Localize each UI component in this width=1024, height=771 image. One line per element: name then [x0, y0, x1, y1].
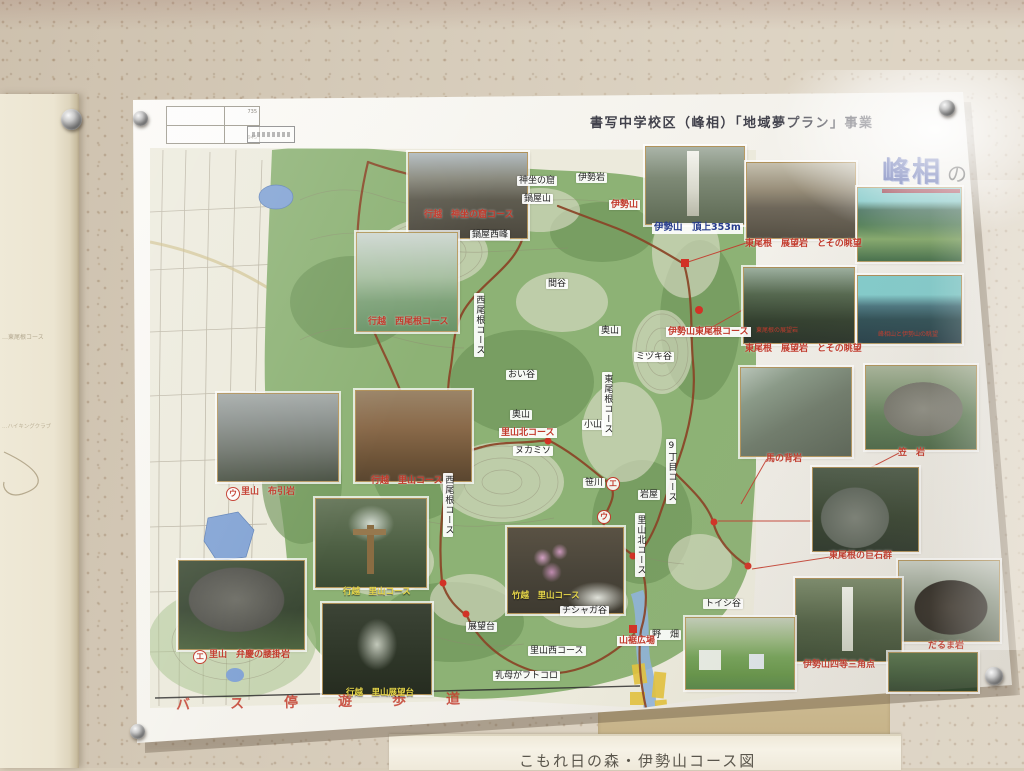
approval-stamp-box: [247, 126, 295, 143]
kyosekigun-photo: [812, 467, 919, 552]
photo-caption-red: 馬の背岩: [766, 454, 802, 464]
map-place-label: 鍋屋山: [522, 194, 553, 204]
series-title-particle: の: [947, 162, 967, 186]
map-place-label: 岩屋: [638, 490, 660, 500]
sankakuten-photo-detail: [842, 587, 853, 651]
yamasuso-park-photo: [685, 617, 795, 690]
map-marker-circled: エ: [606, 477, 620, 491]
photo-caption-red: 里山北コース: [499, 428, 557, 438]
signpost-crossing-photo: [315, 498, 427, 588]
map-course-label: 西尾根コース: [474, 293, 484, 357]
photo-caption-red: 東尾根 展望岩 とその眺望: [745, 239, 862, 249]
map-place-label: 奥山: [599, 326, 621, 336]
poster-screw-top-left: [133, 111, 148, 126]
map-place-label: おい谷: [506, 370, 537, 380]
scale-table-row: [167, 107, 259, 126]
photo-caption-yellow: 行越 里山コース: [343, 588, 411, 598]
uma-no-se-iwa-photo: [740, 367, 852, 457]
photo-caption-tiny: 峰相山と伊勢山の眺望: [878, 332, 938, 339]
photo-caption-red: 伊勢山: [609, 200, 640, 210]
shinza-no-iwaya-photo: [408, 152, 528, 239]
map-place-label: 乳母がフトコロ: [493, 671, 560, 681]
left-sheet-screw: [61, 109, 82, 130]
map-course-label: 9丁目コース: [666, 439, 676, 504]
benkei-iwa-photo: [178, 560, 305, 650]
photo-caption-red: 行越 西尾根コース: [368, 317, 449, 327]
scale-number: 735: [247, 109, 257, 115]
map-marker-circled: ウ: [226, 487, 240, 501]
photo-caption-red: 伊勢山四等三角点: [803, 660, 875, 670]
sankakuten-photo: [795, 578, 902, 662]
poster-screw-bottom-left: [130, 724, 145, 739]
signpost-crossing-photo-detail: [353, 529, 386, 535]
map-place-label: 間谷: [546, 279, 568, 289]
photo-caption-red: 山裾広場: [617, 636, 657, 646]
photo-caption-red: 行越 里山コース: [371, 476, 443, 486]
photo-caption-blue: 伊勢山 頂上353m: [652, 223, 743, 234]
map-course-label: 里山北コース: [635, 513, 645, 577]
series-title: 峰相の: [882, 150, 967, 190]
map-place-label: 展望台: [466, 622, 497, 632]
map-scale-table: 735 945: [166, 106, 260, 144]
photo-caption-tiny: 東尾根の展望岩: [756, 328, 798, 335]
photo-caption-red: 東尾根の巨石群: [829, 551, 892, 561]
photo-caption-red: 里山 布引岩: [241, 487, 295, 497]
photo-caption-yellow: 行越 里山展望台: [346, 689, 414, 699]
map-place-label: トイシ谷: [703, 599, 743, 609]
photo-caption-red: 伊勢山東尾根コース: [666, 327, 751, 337]
photo-caption-red: 行越 神坐の窟コース: [424, 210, 514, 220]
iseyama-summit-photo-detail: [687, 151, 699, 216]
yamasuso-park-photo-detail: [699, 650, 721, 670]
daruma-iwa-photo: [898, 560, 1000, 642]
bus-route-text: バス停遊歩道: [176, 688, 500, 715]
kasa-iwa-photo: [865, 365, 977, 450]
photo-caption-red: 東尾根 展望岩 とその眺望: [745, 344, 862, 354]
poster-screw-top-right: [939, 100, 955, 116]
map-place-label: ヌカミソ: [513, 446, 553, 456]
poster-screw-bottom-right: [985, 667, 1003, 685]
series-title-main: 峰相: [882, 155, 942, 188]
map-course-label: 西尾根コース: [443, 473, 453, 537]
teal-valley-photo: [857, 187, 962, 262]
map-place-label: 伊勢岩: [576, 173, 607, 183]
series-title-underline: [882, 189, 960, 193]
east-ridge-rock-1-photo: [746, 162, 856, 239]
map-place-label: 神坐の窟: [517, 176, 557, 186]
map-place-label: 鍋屋西峰: [470, 230, 510, 240]
yukikoshi-autumn-photo: [355, 390, 472, 482]
map-place-label: ミヅキ谷: [634, 352, 674, 362]
map-place-label: 里山西コース: [528, 646, 586, 656]
program-title: 書写中学校区（峰相）「地域夢プラン」事業: [590, 112, 874, 131]
photo-caption-red: 里山 弁慶の腰掛岩: [209, 650, 290, 660]
nunobiki-iwa-photo: [217, 393, 339, 482]
scale-table-divider: [224, 107, 225, 143]
photo-caption-red: だるま岩: [928, 641, 964, 651]
map-place-label: 笹川: [583, 478, 605, 488]
map-marker-circled: エ: [193, 650, 207, 664]
map-place-label: 奥山: [510, 410, 532, 420]
map-place-label: 小山: [582, 420, 604, 430]
yamasuso-park-photo-detail: [749, 654, 764, 670]
map-course-label: 東尾根コース: [602, 372, 612, 436]
iseyama-summit-photo: [645, 146, 745, 225]
map-place-label: チシャガ谷: [560, 606, 609, 616]
photo-caption-red: 笠 岩: [898, 448, 925, 458]
map-marker-circled: ウ: [597, 510, 611, 524]
bottom-right-partial-photo: [888, 652, 978, 692]
dark-trail-photo: [322, 603, 432, 695]
photo-caption-yellow: 竹越 里山コース: [512, 592, 580, 602]
